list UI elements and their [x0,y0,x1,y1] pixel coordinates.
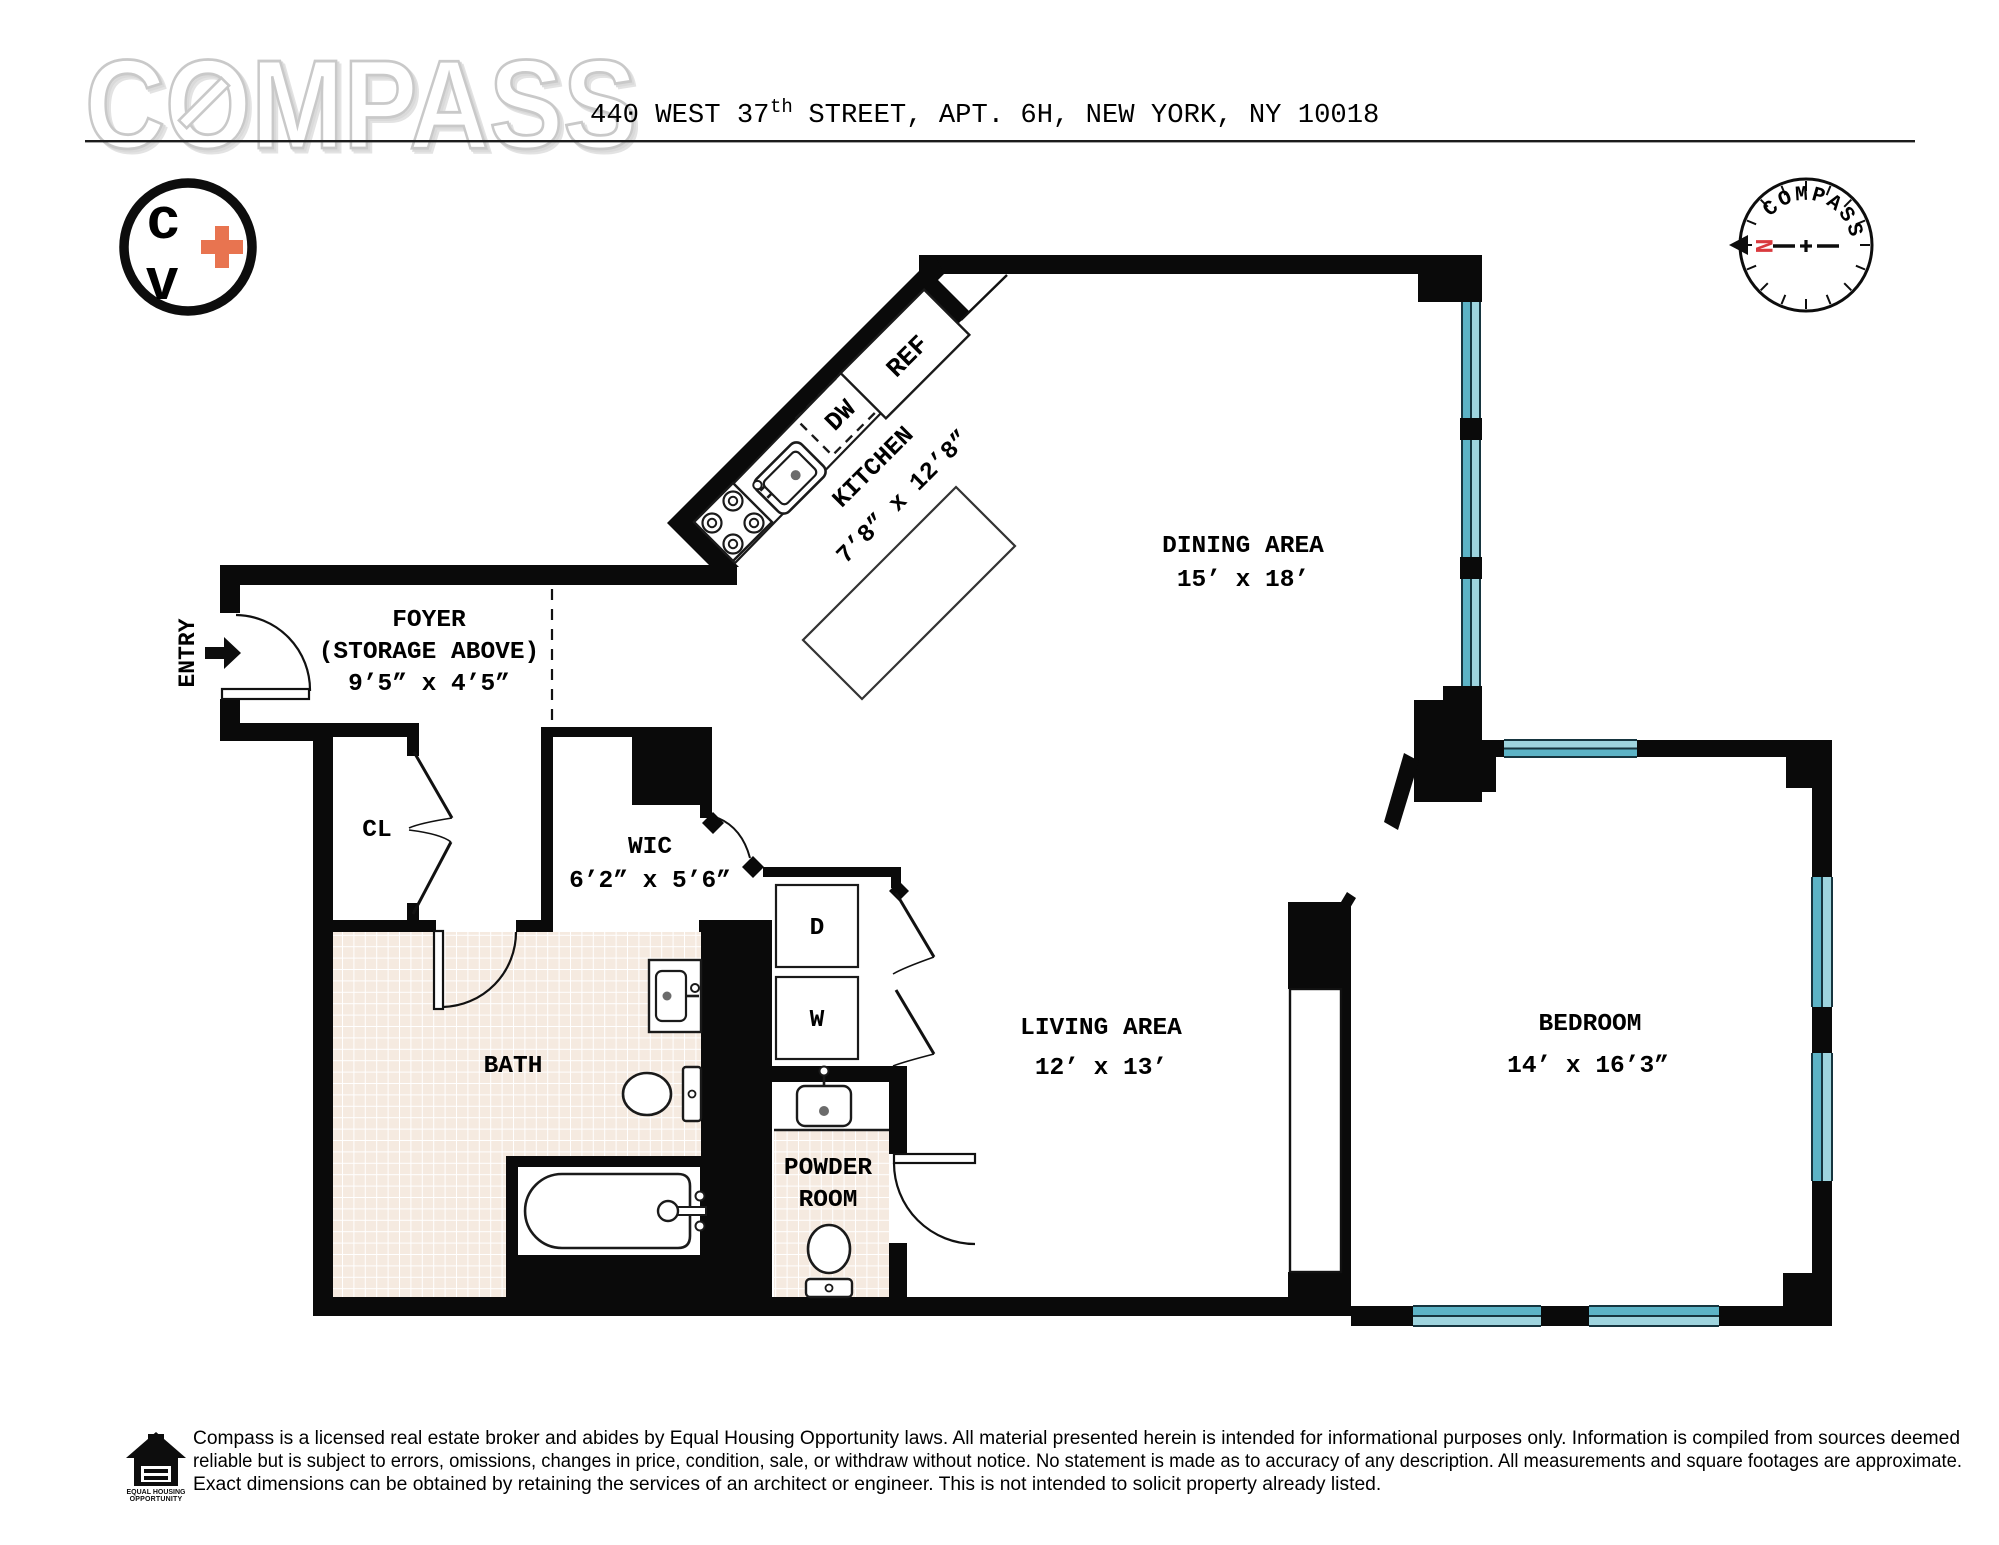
svg-text:12’ x 13’: 12’ x 13’ [1035,1055,1167,1082]
svg-text:COMPASS: COMPASS [1759,184,1866,242]
svg-text:BATH: BATH [484,1053,543,1080]
svg-text:BEDROOM: BEDROOM [1539,1011,1642,1038]
svg-text:reliable but is subject to err: reliable but is subject to errors, omiss… [193,1451,1962,1472]
svg-text:440 WEST 37: 440 WEST 37 [590,100,769,131]
svg-text:14’ x 16’3”: 14’ x 16’3” [1507,1053,1669,1080]
svg-text:15’ x 18’: 15’ x 18’ [1177,567,1309,594]
svg-text:(STORAGE ABOVE): (STORAGE ABOVE) [319,639,540,666]
svg-text:th: th [770,96,793,118]
svg-text:c: c [147,186,179,251]
svg-text:Compass is a licensed real est: Compass is a licensed real estate broker… [193,1428,1960,1449]
svg-text:STREET, APT. 6H, NEW YORK, NY: STREET, APT. 6H, NEW YORK, NY 10018 [792,100,1379,131]
svg-text:v: v [146,247,178,312]
svg-text:POWDER: POWDER [784,1155,873,1182]
svg-text:ENTRY: ENTRY [175,618,201,687]
svg-text:LIVING AREA: LIVING AREA [1020,1015,1182,1042]
svg-text:W: W [810,1007,825,1034]
svg-text:FOYER: FOYER [392,607,466,634]
svg-text:OPPORTUNITY: OPPORTUNITY [130,1496,183,1503]
svg-text:ROOM: ROOM [799,1187,858,1214]
svg-text:9’5” x 4’5”: 9’5” x 4’5” [348,671,510,698]
svg-text:EQUAL HOUSING: EQUAL HOUSING [127,1489,187,1496]
svg-text:COMPASS: COMPASS [85,34,637,175]
svg-text:N: N [1752,238,1781,253]
svg-text:D: D [810,915,825,942]
svg-text:Exact dimensions can be obtain: Exact dimensions can be obtained by reta… [193,1474,1381,1495]
svg-text:DINING AREA: DINING AREA [1162,533,1324,560]
svg-text:WIC: WIC [628,834,672,861]
svg-text:6’2” x 5’6”: 6’2” x 5’6” [569,868,731,895]
svg-text:CL: CL [362,817,391,844]
